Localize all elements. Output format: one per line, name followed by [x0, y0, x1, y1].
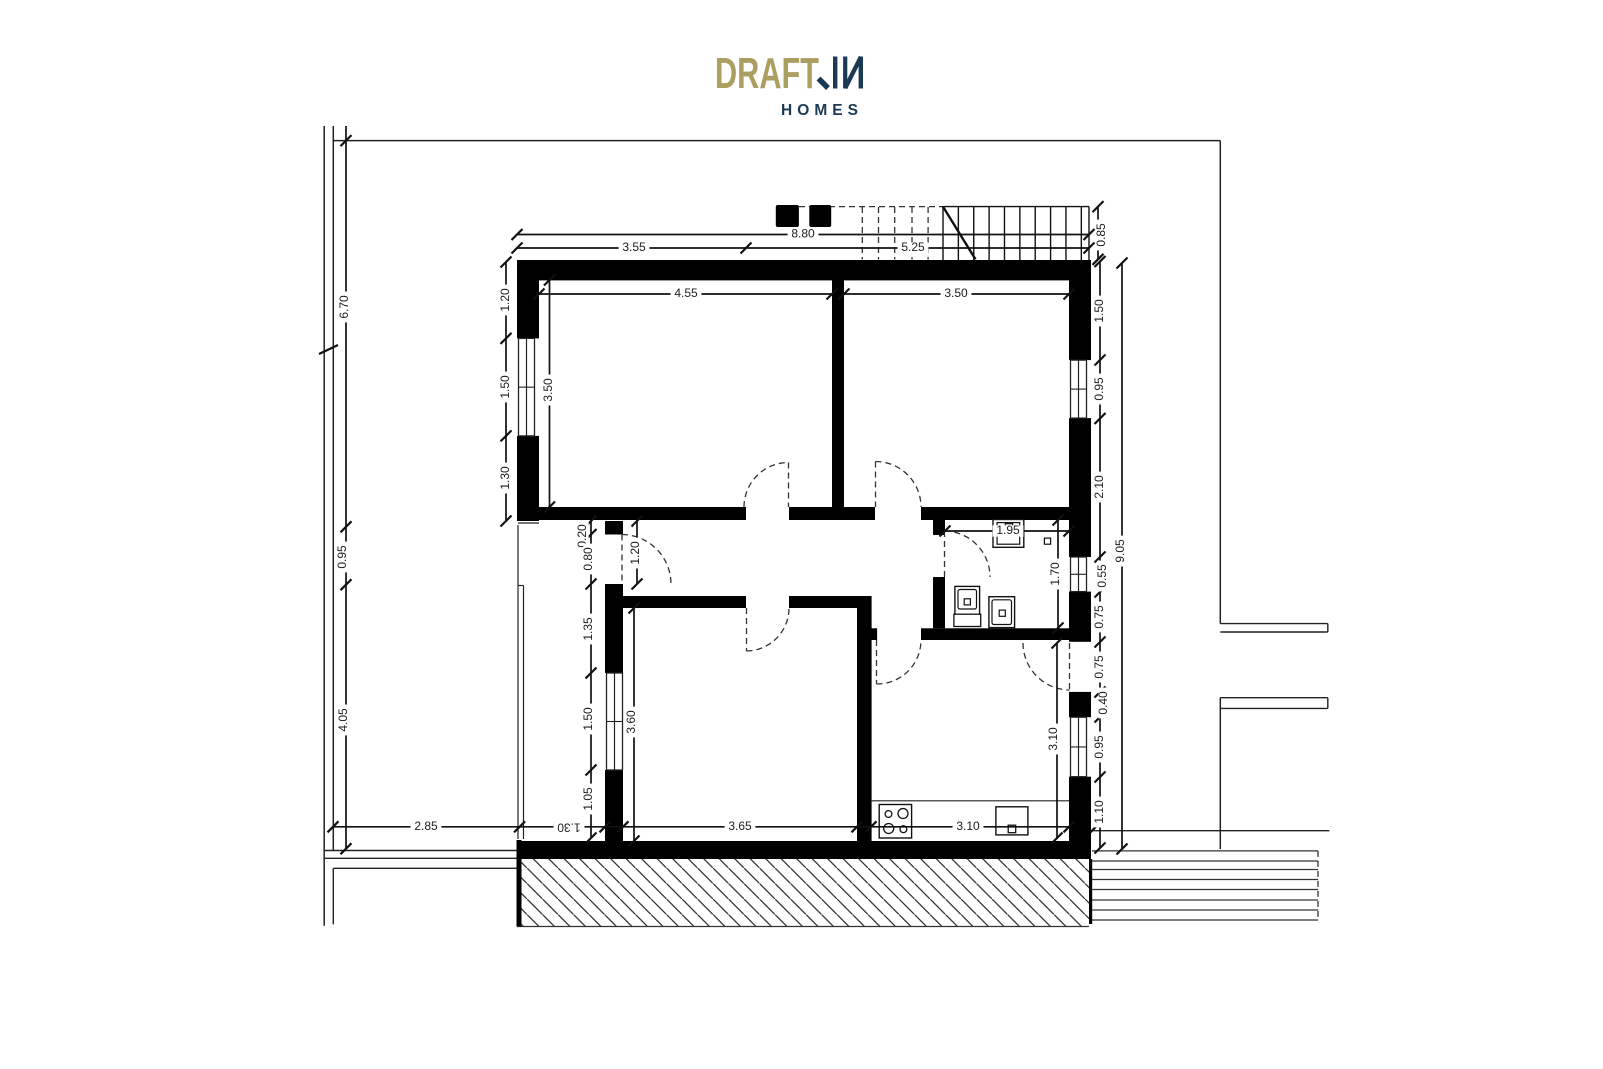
svg-text:1.50: 1.50	[1092, 299, 1106, 323]
svg-text:0.80: 0.80	[581, 547, 595, 571]
svg-text:3.60: 3.60	[624, 710, 638, 734]
svg-text:3.55: 3.55	[622, 240, 646, 254]
svg-text:0.95: 0.95	[1092, 735, 1106, 759]
svg-text:3.10: 3.10	[1046, 727, 1060, 751]
svg-text:0.40: 0.40	[1096, 691, 1110, 715]
svg-text:1.10: 1.10	[1092, 800, 1106, 824]
svg-text:5.25: 5.25	[901, 240, 925, 254]
svg-text:0.75: 0.75	[1092, 655, 1106, 679]
svg-text:1.50: 1.50	[498, 375, 512, 399]
svg-text:1.05: 1.05	[581, 787, 595, 811]
svg-text:0.95: 0.95	[335, 545, 349, 569]
svg-text:6.70: 6.70	[337, 295, 351, 319]
svg-text:1.95: 1.95	[996, 523, 1020, 537]
svg-text:0.75: 0.75	[1092, 605, 1106, 629]
svg-text:3.50: 3.50	[541, 378, 555, 402]
svg-text:1.30: 1.30	[557, 821, 581, 835]
svg-text:8.80: 8.80	[791, 227, 815, 241]
svg-text:4.05: 4.05	[336, 708, 350, 732]
svg-text:0.95: 0.95	[1092, 377, 1106, 401]
svg-text:1.20: 1.20	[498, 288, 512, 312]
svg-text:1.30: 1.30	[498, 466, 512, 490]
svg-text:3.10: 3.10	[956, 819, 980, 833]
svg-text:2.85: 2.85	[414, 819, 438, 833]
svg-text:HOMES: HOMES	[781, 102, 861, 119]
svg-text:0.85: 0.85	[1094, 223, 1108, 247]
svg-text:1.50: 1.50	[581, 707, 595, 731]
svg-text:3.50: 3.50	[944, 286, 968, 300]
svg-text:0.55: 0.55	[1095, 564, 1109, 588]
svg-text:1.20: 1.20	[628, 541, 642, 565]
svg-text:1.35: 1.35	[581, 617, 595, 641]
svg-text:9.05: 9.05	[1113, 539, 1127, 563]
svg-text:2.10: 2.10	[1092, 475, 1106, 499]
svg-text:1.70: 1.70	[1048, 562, 1062, 586]
svg-text:DRAFT: DRAFT	[715, 49, 819, 98]
svg-text:4.55: 4.55	[674, 286, 698, 300]
svg-text:3.65: 3.65	[728, 819, 752, 833]
